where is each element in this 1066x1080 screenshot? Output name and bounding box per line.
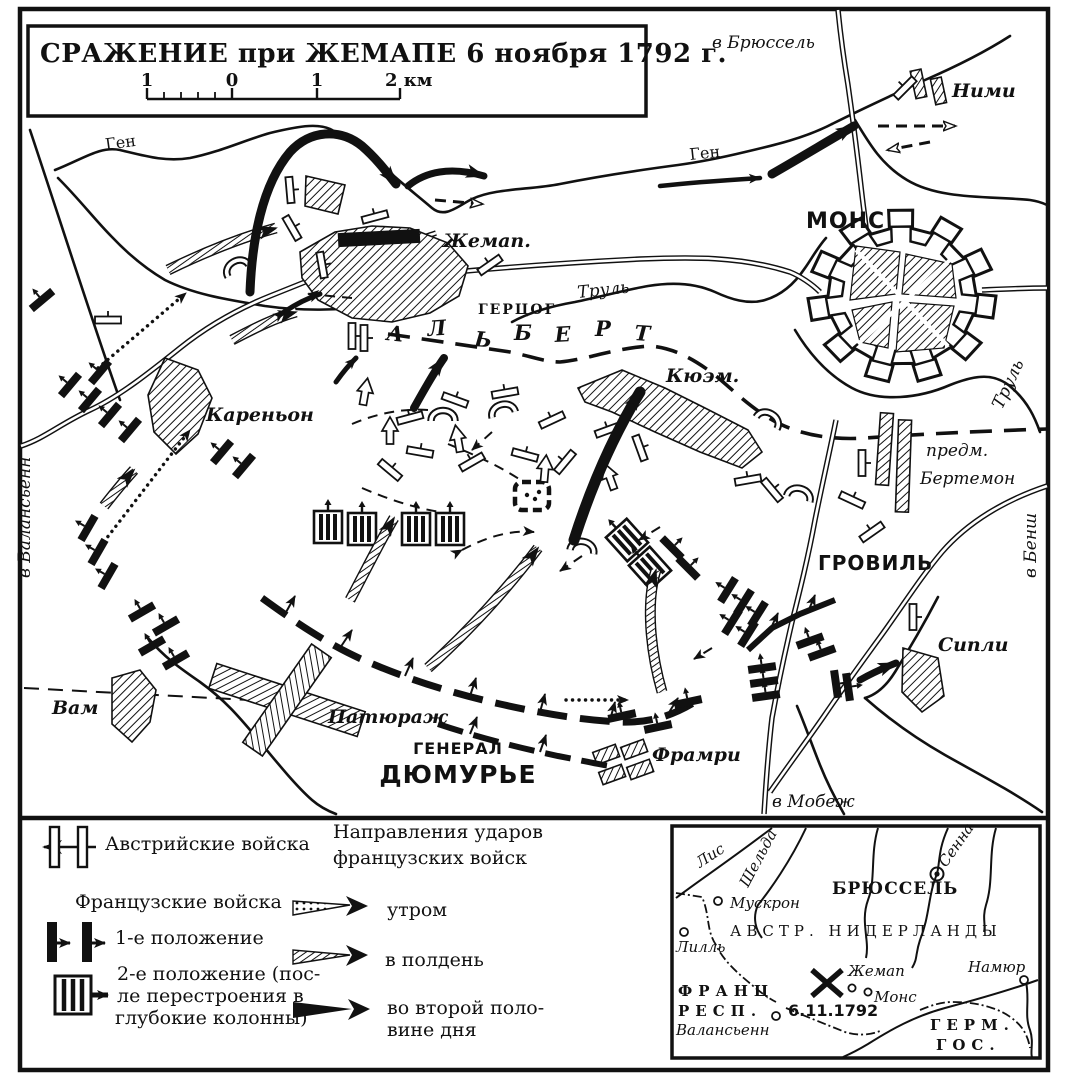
- inset-label-valenciennes: Валансьенн: [675, 1021, 770, 1039]
- label-to-brussels: в Брюссель: [712, 33, 815, 53]
- label-bertaimont-1: предм.: [926, 441, 988, 461]
- svg-text:А: А: [383, 320, 405, 347]
- label-dumouriez: ДЮМУРЬЕ: [379, 760, 536, 789]
- label-to-valenciennes: в Валансьенн: [15, 457, 35, 578]
- inset-label-france-1: ФРАНЦ: [678, 982, 774, 1000]
- svg-text:Е: Е: [553, 321, 572, 347]
- label-wasmes: Вам: [51, 697, 98, 719]
- label-ciply: Сипли: [938, 634, 1008, 656]
- inset-label-namur: Намюр: [967, 958, 1026, 976]
- battle-map-svg: в Брюссель Ними МОНС Ген Ген Жемап. ГЕРЦ…: [0, 0, 1066, 1080]
- battle-map-page: в Брюссель Ними МОНС Ген Ген Жемап. ГЕРЦ…: [0, 0, 1066, 1080]
- legend-directions-2: французских войск: [333, 847, 527, 869]
- legend-pos2-label-3: глубокие колонны): [115, 1007, 308, 1029]
- city-dot-mons: [864, 988, 871, 995]
- svg-text:Б: Б: [513, 320, 532, 345]
- legend-pos1-label: 1-е положение: [115, 927, 264, 949]
- label-grovil: ГРОВИЛЬ: [818, 551, 933, 575]
- label-bertaimont-2: Бертемон: [919, 469, 1015, 489]
- legend-directions-1: Направления ударов: [333, 821, 543, 843]
- legend-austrian-label: Австрийские войска: [105, 833, 310, 855]
- svg-text:0: 0: [226, 70, 239, 91]
- svg-text:Ь: Ь: [473, 326, 493, 353]
- title-box: СРАЖЕНИЕ при ЖЕМАПЕ 6 ноября 1792 г. 1 0…: [28, 26, 727, 116]
- legend-morning-label: утром: [387, 899, 447, 921]
- city-dot-namur: [1020, 976, 1028, 984]
- label-frameries: Фрамри: [652, 744, 741, 766]
- city-dot-mouscron: [714, 897, 722, 905]
- legend-afternoon-label-2: вине дня: [387, 1019, 477, 1041]
- legend-noon-label: в полдень: [385, 949, 484, 971]
- city-dot-lille: [680, 928, 688, 936]
- label-jemappes: Жемап.: [441, 230, 531, 252]
- inset-label-germany-2: ГОС.: [936, 1036, 1001, 1054]
- inset-label-brussels: БРЮССЕЛЬ: [832, 879, 958, 899]
- suburb-bertaimont-b: [895, 420, 911, 512]
- svg-text:2 км: 2 км: [385, 70, 433, 91]
- label-mons: МОНС: [806, 209, 885, 234]
- inset-label-mouscron: Мускрон: [729, 894, 800, 912]
- label-duke: ГЕРЦОГ: [478, 302, 556, 318]
- label-cuesmes: Кюэм.: [665, 365, 739, 387]
- legend-pos2-label-2: ле перестроения в: [117, 985, 304, 1007]
- inset-label-jemappes: Жемап: [847, 962, 905, 980]
- city-dot-jemappes: [848, 984, 855, 991]
- inset-map: Лис Шельда Сенна БРЮССЕЛЬ Мускрон Лилль …: [672, 820, 1040, 1058]
- label-river-gen-east: Ген: [688, 142, 721, 164]
- label-quaregnon: Кареньон: [205, 404, 314, 426]
- city-dot-valenciennes: [772, 1012, 780, 1020]
- inset-label-france-2: РЕСП.: [678, 1002, 762, 1020]
- label-paturages: Патюраж: [327, 706, 449, 728]
- svg-text:Л: Л: [426, 315, 449, 341]
- map-title: СРАЖЕНИЕ при ЖЕМАПЕ 6 ноября 1792 г.: [40, 39, 727, 69]
- inset-label-austrian-netherlands: АВСТР. НИДЕРЛАНДЫ: [730, 922, 1002, 940]
- inset-label-date: 6.11.1792: [788, 1001, 878, 1020]
- city-dot-brussels-core: [934, 871, 939, 876]
- redoubt-icon: [515, 482, 549, 510]
- inset-label-germany-1: ГЕРМ.: [930, 1016, 1015, 1034]
- legend-pos2-label-1: 2-е положение (пос-: [117, 963, 320, 985]
- legend-french-label: Французские войска: [75, 891, 282, 913]
- svg-text:Р: Р: [594, 316, 612, 341]
- label-nimy: Ними: [951, 80, 1016, 102]
- legend-afternoon-label-1: во второй поло-: [387, 997, 544, 1019]
- inset-label-mons: Монс: [873, 988, 917, 1006]
- label-to-maubeuge: в Мобеж: [772, 792, 855, 812]
- label-general: ГЕНЕРАЛ: [413, 739, 503, 758]
- svg-text:1: 1: [311, 70, 324, 91]
- svg-text:1: 1: [141, 70, 154, 91]
- label-to-binche: в Бенш: [1021, 513, 1041, 578]
- inset-label-lille: Лилль: [675, 938, 725, 956]
